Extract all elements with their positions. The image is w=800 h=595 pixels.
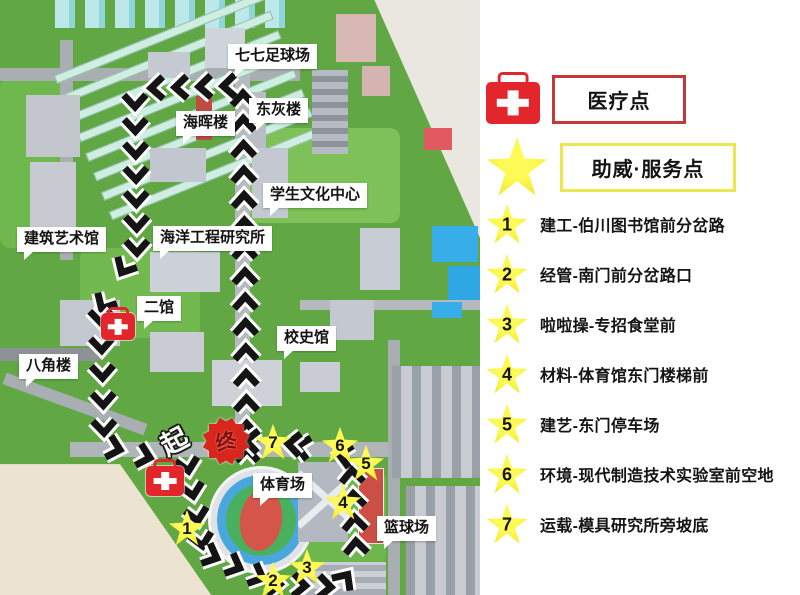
building-red (424, 128, 452, 150)
pool-blue (432, 302, 462, 318)
map-label-octagon-building: 八角楼 (19, 354, 78, 379)
road (2, 373, 147, 436)
building (300, 362, 340, 392)
list-item: 3 啦啦操-专招食堂前 (486, 304, 798, 344)
medical-point-icon (146, 466, 184, 496)
dorm-rows-topright (312, 70, 348, 154)
star-icon: 3 (486, 303, 528, 345)
building (360, 228, 400, 290)
finish-marker: 终 (201, 416, 251, 466)
legend-medical-row: 医疗点 (486, 74, 686, 124)
list-item: 1 建工-伯川图书馆前分岔路 (486, 204, 798, 244)
map-label-haihui-building: 海晖楼 (176, 111, 235, 136)
star-icon: 1 (486, 203, 528, 245)
pool-blue (448, 266, 480, 300)
building-pink (362, 66, 390, 96)
building (150, 148, 206, 182)
star-icon: 5 (486, 403, 528, 445)
building (150, 332, 204, 372)
list-item: 5 建艺-东门停车场 (486, 404, 798, 444)
pool-blue (432, 226, 478, 262)
star-icon: 4 (486, 353, 528, 395)
star-icon: 2 (486, 253, 528, 295)
list-item: 4 材料-体育馆东门楼梯前 (486, 354, 798, 394)
list-item: 7 运载-模具研究所旁坡底 (486, 504, 798, 544)
building (212, 360, 282, 406)
map-label-basketball-court: 篮球场 (377, 516, 436, 541)
star-icon: 7 (486, 503, 528, 545)
campus-run-map-graphic: 七七足球场 东灰楼 海晖楼 学生文化中心 建筑艺术馆 海洋工程研究所 二馆 校史… (0, 0, 800, 595)
map-label-east-grey-building: 东灰楼 (249, 98, 308, 123)
legend-panel: 医疗点 助威·服务点 1 建工-伯川图书馆前分岔路 2 经管-南门前分岔路口 3… (480, 0, 800, 595)
map-label-ocean-engineering-institute: 海洋工程研究所 (153, 226, 272, 251)
map-label-sports-field: 体育场 (253, 473, 312, 498)
campus-map: 七七足球场 东灰楼 海晖楼 学生文化中心 建筑艺术馆 海洋工程研究所 二馆 校史… (0, 0, 480, 595)
building-pink (336, 14, 376, 62)
map-label-qiqi-football-field: 七七足球场 (228, 44, 317, 69)
map-label-architecture-art-museum: 建筑艺术馆 (17, 227, 106, 252)
service-points-list: 1 建工-伯川图书馆前分岔路 2 经管-南门前分岔路口 3 啦啦操-专招食堂前 … (486, 204, 798, 544)
list-item: 2 经管-南门前分岔路口 (486, 254, 798, 294)
map-label-student-culture-center: 学生文化中心 (263, 183, 367, 208)
legend-medical-label: 医疗点 (552, 75, 686, 124)
building (330, 300, 374, 340)
legend-service-row: 助威·服务点 (486, 136, 736, 198)
map-label-school-history-museum: 校史馆 (277, 326, 336, 351)
legend-service-label: 助威·服务点 (560, 143, 736, 192)
building (148, 52, 190, 78)
first-aid-kit-icon (486, 82, 540, 124)
star-icon: 6 (486, 453, 528, 495)
medical-point-icon (101, 313, 135, 340)
star-icon (486, 136, 548, 198)
map-label-hall-two: 二馆 (137, 296, 181, 321)
list-item: 6 环境-现代制造技术实验室前空地 (486, 454, 798, 494)
residential-rows-right (406, 486, 480, 595)
building (26, 95, 80, 157)
residential-rows-right (392, 366, 480, 478)
